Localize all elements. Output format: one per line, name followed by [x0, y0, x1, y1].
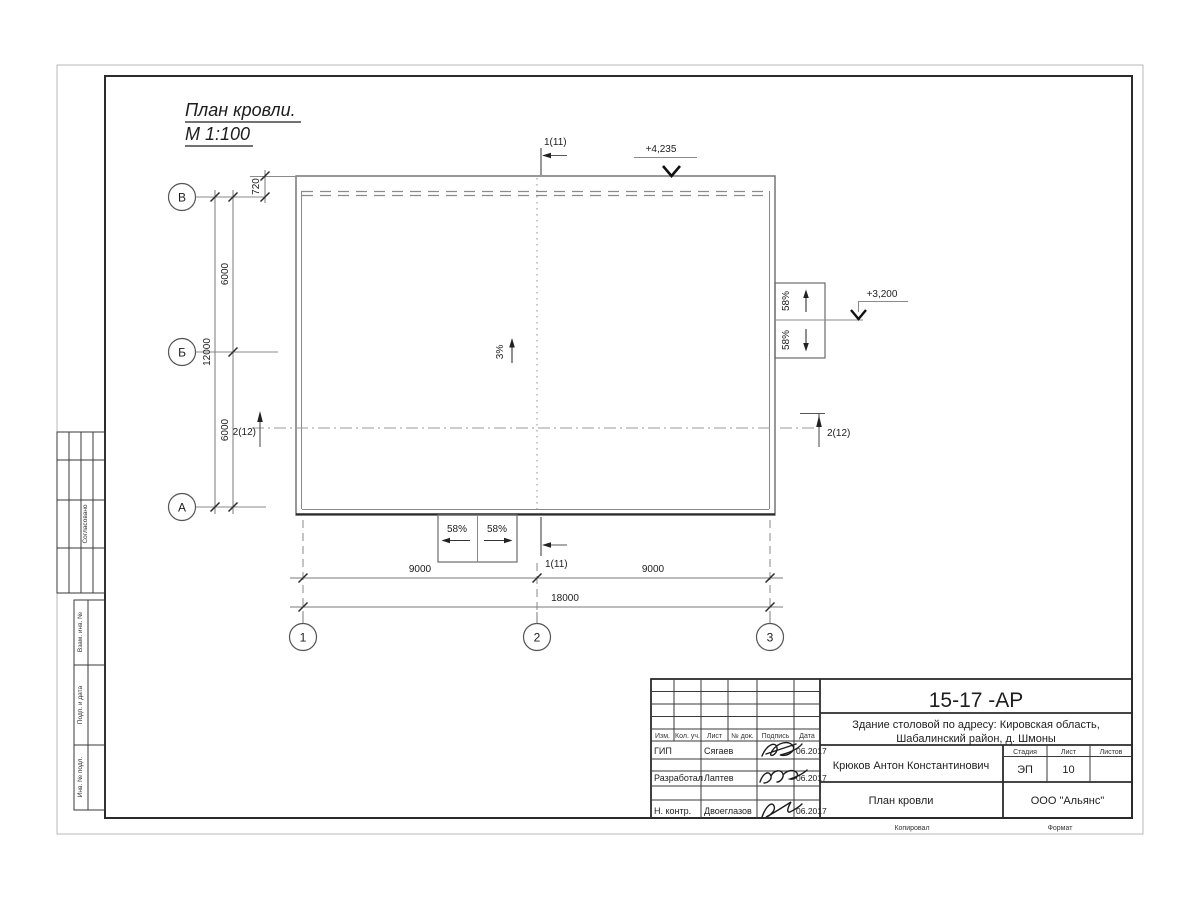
axis-col-3: 3 [767, 631, 774, 645]
elevation-right-value: +3,200 [867, 289, 898, 300]
axis-row-b: Б [178, 346, 186, 360]
dim-6000: 6000 [220, 262, 231, 285]
drawing-title-line1: План кровли. [185, 100, 296, 120]
row-date: 06.2017 [796, 746, 827, 756]
axis-row-a: А [178, 501, 186, 515]
company-name: ООО "Альянс" [1031, 795, 1105, 807]
roof-plan-drawing: Согласовано Взам. инв. № Подп. и дата Ин… [0, 0, 1200, 900]
axis-row-v: В [178, 191, 186, 205]
canopy-slope-label: 58% [781, 291, 792, 311]
dim-9000: 9000 [409, 564, 432, 575]
axis-col-1: 1 [300, 631, 307, 645]
dim-18000: 18000 [551, 593, 579, 604]
sheet-value: 10 [1062, 764, 1074, 776]
author-name: Крюков Антон Константинович [833, 760, 990, 772]
sheets-label: Листов [1100, 749, 1123, 756]
format-label: Формат [1048, 825, 1074, 832]
elevation-top-value: +4,235 [646, 144, 677, 155]
margin-box-1-label: Взам. инв. № [77, 612, 84, 652]
canopy-slope-label: 58% [781, 330, 792, 350]
sheet-name: План кровли [869, 795, 934, 807]
project-name-line2: Шабалинский район, д. Шмоны [896, 733, 1056, 745]
margin-box-2-label: Подп. и дата [77, 685, 84, 724]
stage-value: ЭП [1017, 764, 1033, 776]
axis-col-2: 2 [534, 631, 541, 645]
agreed-label: Согласовано [82, 504, 89, 543]
row-role: Разработал [654, 773, 703, 783]
row-role: Н. контр. [654, 806, 691, 816]
drawing-title-line2: М 1:100 [185, 124, 250, 144]
section-2-label: 2(12) [233, 427, 256, 438]
stage-label: Стадия [1013, 749, 1037, 756]
row-name: Сягаев [704, 746, 733, 756]
margin-box-3-label: Инв. № подл. [77, 757, 84, 798]
project-name-line1: Здание столовой по адресу: Кировская обл… [852, 719, 1100, 731]
slope-label: 3% [495, 345, 506, 360]
dim-9000: 9000 [642, 564, 665, 575]
canopy-slope-label: 58% [487, 524, 507, 535]
dim-6000: 6000 [220, 418, 231, 441]
col-list: Лист [707, 733, 723, 740]
dim-12000: 12000 [202, 338, 213, 366]
dim-720: 720 [251, 178, 262, 195]
row-date: 06.2017 [796, 806, 827, 816]
col-doc: № док. [731, 733, 753, 740]
section-1-label: 1(11) [544, 137, 567, 148]
sheet-label: Лист [1061, 749, 1077, 756]
row-name: Лаптев [704, 773, 734, 783]
section-2-label: 2(12) [827, 428, 850, 439]
row-name: Двоеглазов [704, 806, 752, 816]
copied-label: Копировал [894, 825, 929, 832]
col-sign: Подпись [762, 733, 790, 740]
section-1-label: 1(11) [545, 559, 568, 570]
drawing-sheet: Согласовано Взам. инв. № Подп. и дата Ин… [0, 0, 1200, 900]
col-kol: Кол. уч. [675, 733, 700, 740]
document-number: 15-17 -АР [929, 689, 1024, 712]
canopy-slope-label: 58% [447, 524, 467, 535]
col-izm: Изм. [655, 733, 670, 740]
col-date: Дата [799, 733, 815, 740]
row-role: ГИП [654, 746, 672, 756]
